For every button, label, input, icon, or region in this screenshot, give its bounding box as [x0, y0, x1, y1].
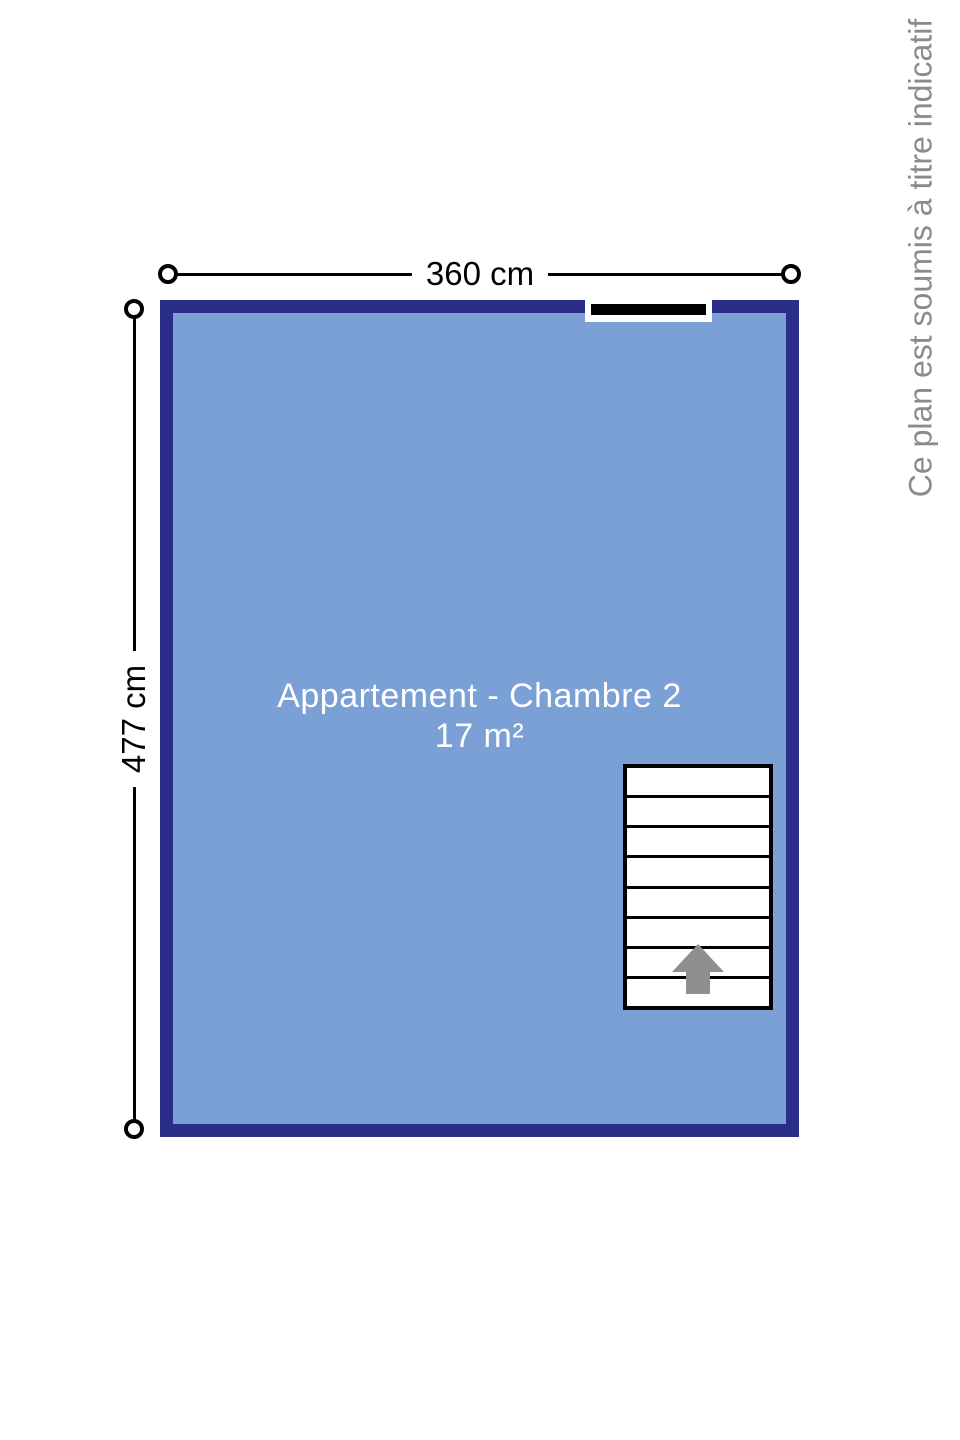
- circle-endpoint-icon: [158, 264, 178, 284]
- circle-endpoint-icon: [781, 264, 801, 284]
- circle-endpoint-icon: [124, 299, 144, 319]
- up-arrow-shape: [672, 944, 724, 994]
- window-opening: [585, 300, 712, 322]
- stair-step: [627, 858, 769, 888]
- stair-step: [627, 828, 769, 858]
- stair-step: [627, 889, 769, 919]
- width-dimension-label: 360 cm: [412, 253, 548, 295]
- circle-endpoint-icon: [124, 1119, 144, 1139]
- disclaimer-note: Ce plan est soumis à titre indicatif: [903, 19, 940, 497]
- staircase: [623, 764, 773, 1010]
- floor-plan-canvas: 360 cm 477 cm Appartement - Chambre 2 17…: [0, 0, 960, 1440]
- up-arrow-icon: [672, 944, 724, 994]
- room-name-label: Appartement - Chambre 2: [160, 676, 799, 716]
- room-label: Appartement - Chambre 2 17 m²: [160, 676, 799, 756]
- window-glazing-bar-icon: [591, 304, 706, 315]
- height-dimension-label: 477 cm: [113, 651, 155, 787]
- stair-step: [627, 768, 769, 798]
- room-area-label: 17 m²: [160, 716, 799, 756]
- stair-step: [627, 798, 769, 828]
